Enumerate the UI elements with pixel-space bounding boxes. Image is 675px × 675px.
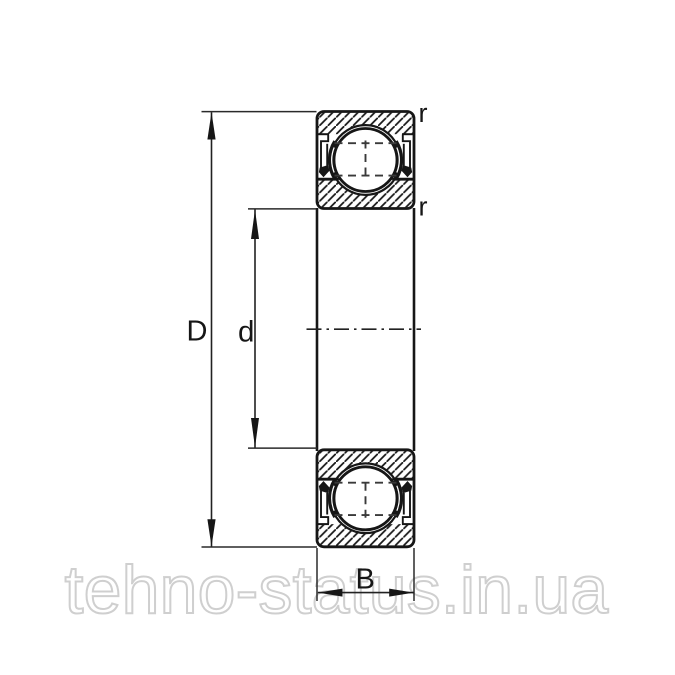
- svg-text:d: d: [238, 316, 254, 349]
- svg-text:r: r: [419, 192, 428, 222]
- svg-text:D: D: [187, 316, 208, 348]
- svg-text:B: B: [356, 564, 375, 596]
- svg-text:r: r: [419, 98, 428, 128]
